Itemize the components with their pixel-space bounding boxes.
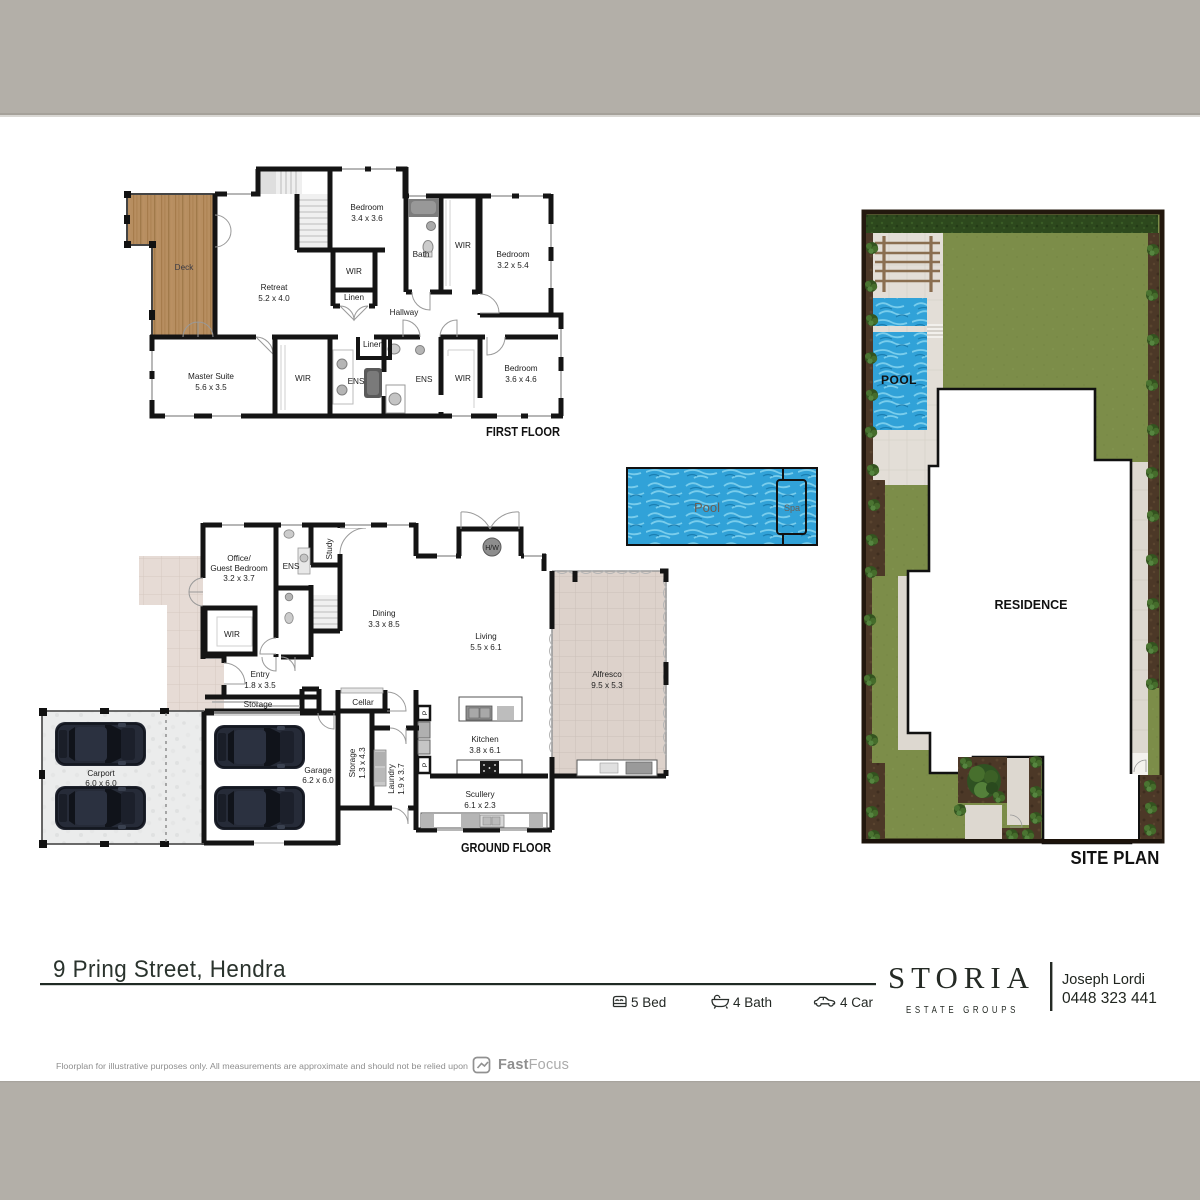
svg-text:ESTATE GROUPS: ESTATE GROUPS	[906, 1005, 1019, 1016]
svg-text:Storage: Storage	[244, 700, 273, 709]
svg-text:Deck: Deck	[175, 263, 195, 272]
svg-text:5.6 x 3.5: 5.6 x 3.5	[195, 383, 227, 392]
svg-text:Bedroom: Bedroom	[350, 203, 383, 212]
svg-text:Retreat: Retreat	[261, 283, 289, 292]
svg-text:Alfresco: Alfresco	[592, 670, 622, 679]
svg-text:WIR: WIR	[224, 630, 240, 639]
svg-text:1.8 x 3.5: 1.8 x 3.5	[244, 681, 276, 690]
svg-text:4 Car: 4 Car	[840, 995, 874, 1010]
svg-text:STORIA: STORIA	[888, 960, 1035, 995]
svg-text:FIRST FLOOR: FIRST FLOOR	[486, 424, 561, 439]
svg-text:Master Suite: Master Suite	[188, 372, 234, 381]
svg-text:Scullery: Scullery	[465, 790, 495, 799]
svg-text:ENS: ENS	[416, 375, 433, 384]
svg-text:Cellar: Cellar	[352, 698, 374, 707]
svg-text:6.2 x 6.0: 6.2 x 6.0	[302, 776, 334, 785]
svg-text:WIR: WIR	[295, 374, 311, 383]
svg-text:ENS: ENS	[283, 562, 300, 571]
svg-text:H/W: H/W	[485, 545, 499, 552]
svg-text:3.3 x 8.5: 3.3 x 8.5	[368, 620, 400, 629]
svg-text:Linen: Linen	[344, 293, 364, 302]
svg-text:WIR: WIR	[455, 241, 471, 250]
svg-text:Study: Study	[325, 538, 334, 560]
svg-text:5.5 x 6.1: 5.5 x 6.1	[470, 643, 502, 652]
svg-text:6.0 x 6.0: 6.0 x 6.0	[85, 779, 117, 788]
svg-text:3.4 x 3.6: 3.4 x 3.6	[351, 214, 383, 223]
svg-text:WIR: WIR	[346, 267, 362, 276]
svg-text:Laundry: Laundry	[387, 763, 396, 793]
svg-text:Bedroom: Bedroom	[496, 250, 529, 259]
svg-text:Garage: Garage	[304, 766, 332, 775]
svg-text:FastFocus: FastFocus	[498, 1057, 569, 1073]
svg-text:Office/: Office/	[227, 554, 251, 563]
svg-text:Pool: Pool	[694, 500, 720, 515]
svg-text:3.8 x 6.1: 3.8 x 6.1	[469, 746, 501, 755]
svg-text:Joseph Lordi: Joseph Lordi	[1062, 972, 1145, 988]
svg-text:Carport: Carport	[87, 769, 115, 778]
svg-text:SITE PLAN: SITE PLAN	[1071, 848, 1160, 868]
svg-text:WIR: WIR	[455, 374, 471, 383]
svg-text:P: P	[422, 763, 429, 767]
svg-text:Dining: Dining	[372, 609, 396, 618]
svg-text:9.5 x 5.3: 9.5 x 5.3	[591, 681, 623, 690]
svg-text:Kitchen: Kitchen	[471, 735, 499, 744]
svg-text:3.6 x 4.6: 3.6 x 4.6	[505, 375, 537, 384]
svg-text:Floorplan for illustrative pur: Floorplan for illustrative purposes only…	[56, 1061, 468, 1071]
svg-text:Entry: Entry	[250, 670, 270, 679]
svg-text:3.2 x 5.4: 3.2 x 5.4	[497, 261, 529, 270]
svg-text:GROUND FLOOR: GROUND FLOOR	[461, 840, 552, 855]
svg-text:1.9 x 3.7: 1.9 x 3.7	[397, 763, 406, 795]
svg-text:P: P	[422, 711, 429, 715]
svg-text:3.2 x 3.7: 3.2 x 3.7	[223, 574, 255, 583]
svg-text:9 Pring Street, Hendra: 9 Pring Street, Hendra	[53, 956, 286, 983]
svg-text:ENS: ENS	[348, 377, 365, 386]
svg-text:Guest Bedroom: Guest Bedroom	[210, 564, 268, 573]
svg-text:4 Bath: 4 Bath	[733, 995, 772, 1010]
svg-text:RESIDENCE: RESIDENCE	[995, 598, 1068, 612]
svg-text:Hallway: Hallway	[390, 308, 420, 317]
svg-text:1.3 x 4.3: 1.3 x 4.3	[358, 747, 367, 779]
svg-text:6.1 x 2.3: 6.1 x 2.3	[464, 801, 496, 810]
svg-text:Bedroom: Bedroom	[504, 364, 537, 373]
svg-text:0448 323 441: 0448 323 441	[1062, 990, 1157, 1007]
svg-text:Linen: Linen	[363, 340, 383, 349]
svg-text:5.2 x 4.0: 5.2 x 4.0	[258, 294, 290, 303]
svg-text:5 Bed: 5 Bed	[631, 995, 666, 1010]
svg-text:POOL: POOL	[881, 373, 917, 387]
svg-text:Living: Living	[475, 632, 497, 641]
svg-text:Spa: Spa	[784, 503, 800, 513]
svg-text:Bath: Bath	[413, 250, 430, 259]
svg-text:Storage: Storage	[348, 748, 357, 777]
